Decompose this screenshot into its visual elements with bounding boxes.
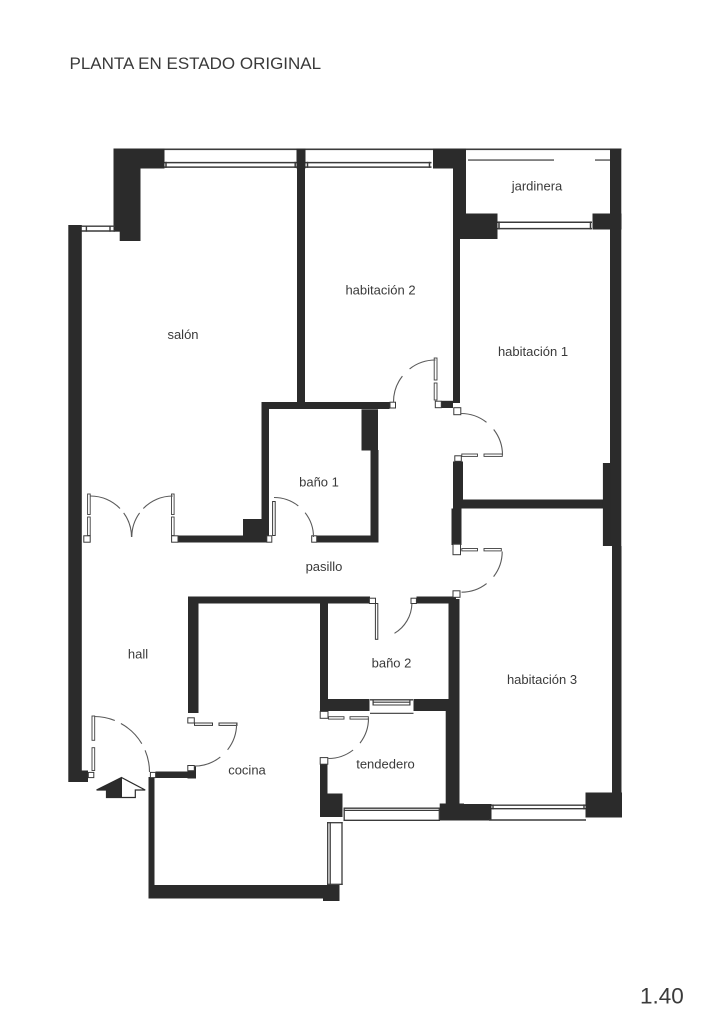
svg-text:pasillo: pasillo <box>306 559 343 574</box>
svg-text:habitación 3: habitación 3 <box>507 672 577 687</box>
svg-text:jardinera: jardinera <box>511 179 563 194</box>
svg-text:PLANTA EN ESTADO ORIGINAL: PLANTA EN ESTADO ORIGINAL <box>70 54 322 73</box>
svg-text:baño 2: baño 2 <box>372 656 412 671</box>
svg-text:salón: salón <box>167 327 198 342</box>
svg-text:hall: hall <box>128 647 148 662</box>
svg-text:1.40: 1.40 <box>640 984 684 1009</box>
svg-text:tendedero: tendedero <box>356 757 415 772</box>
svg-text:habitación 1: habitación 1 <box>498 344 568 359</box>
svg-text:baño 1: baño 1 <box>299 475 339 490</box>
svg-text:cocina: cocina <box>228 763 266 778</box>
svg-text:habitación 2: habitación 2 <box>345 283 415 298</box>
